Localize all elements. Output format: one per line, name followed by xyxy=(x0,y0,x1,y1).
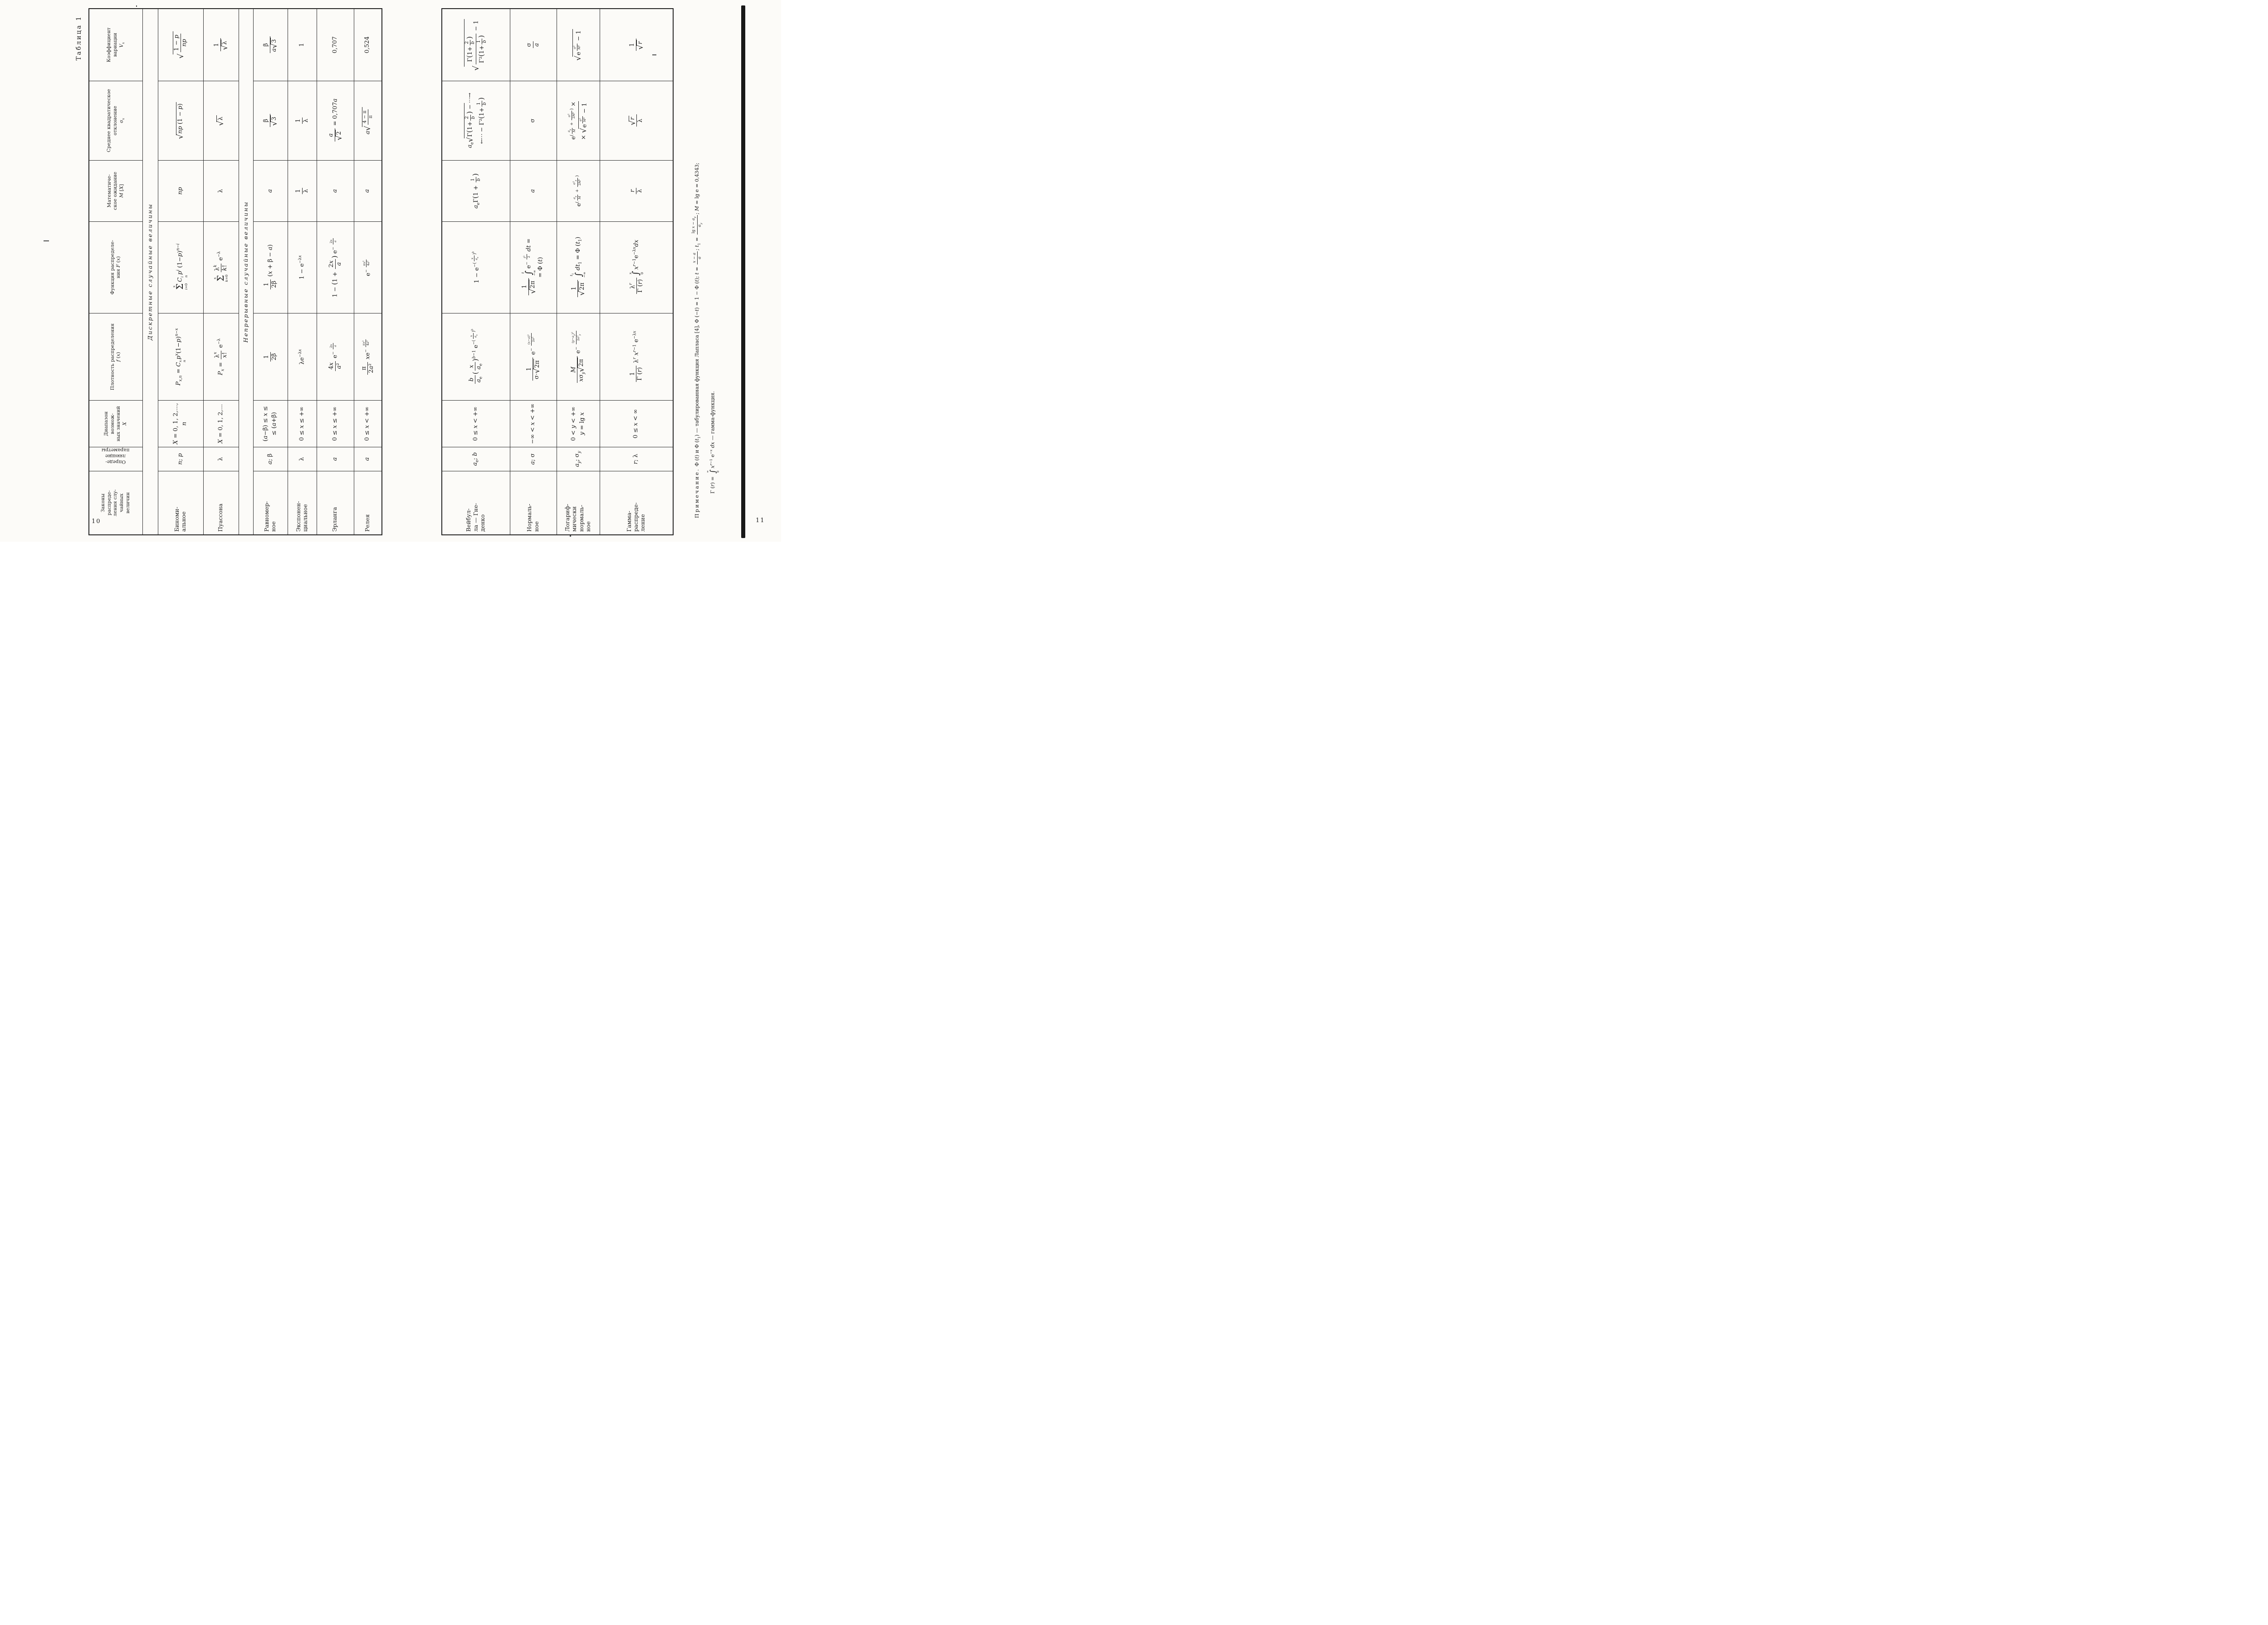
cell-name: Биноми-альное xyxy=(158,471,203,535)
cell-params: a; σ xyxy=(510,447,557,471)
cell-varcoef: √Γ(1+2b)Γ²(1+1b) − 1 xyxy=(442,9,510,81)
cell-mean: a xyxy=(354,160,382,221)
table-row: Логариф-мическинормаль-ноеay; σy0 < y < … xyxy=(557,9,600,535)
table-row: Равномер-ноеa; β(a−β) ≤ x ≤≤ (a+β)12β12β… xyxy=(253,9,288,535)
column-header-density: Плотность распределенияf (x) xyxy=(89,313,142,401)
cell-params: ay; σy xyxy=(557,447,600,471)
cell-cdf: e− πx²4a² xyxy=(354,221,382,313)
cell-params: a xyxy=(317,447,354,471)
scan-edge-shadow-bar xyxy=(741,5,745,538)
cell-params: r; λ xyxy=(600,447,673,471)
cell-varcoef: 1√r xyxy=(600,9,673,81)
table-row: Биноми-альноеn; pX = 0, 1, 2,…, nPx,n = … xyxy=(158,9,203,535)
cell-params: λ xyxy=(288,447,317,471)
table-caption: Таблица 1 xyxy=(75,15,83,60)
table-row: Экспонен-циальноеλ0 ≤ x ≤ +∞λe−λx1 − e−λ… xyxy=(288,9,317,535)
cell-name: Экспонен-циальное xyxy=(288,471,317,535)
table-row: Эрлангаa0 ≤ x ≤ +∞4xa² e− 2xa1 − (1 + 2x… xyxy=(317,9,354,535)
cell-cdf: 1 − e−(xaе)b xyxy=(442,221,510,313)
table-row: ПуассонаλX = 0, 1, 2,…Px = λxx! e−λxΣk=0… xyxy=(203,9,239,535)
section-row-discrete: Дискретные случайные величины xyxy=(142,9,158,535)
distribution-table-page-10: Законыраспреде-ления слу-чайныхвеличинОп… xyxy=(88,8,382,535)
column-header-params: Опреде-ляющиепараметры xyxy=(89,447,142,471)
cell-range: 0 < y < +∞y = lg x xyxy=(557,401,600,447)
cell-range: 0 ≤ x < +∞ xyxy=(442,401,510,447)
table-footnote: Примечание. Φ (t) и Φ (t1) — табулирован… xyxy=(691,21,719,534)
cell-std: a√2 = 0,707a xyxy=(317,81,354,160)
cell-density: Px,n = Cxnpx(1−p)n−x xyxy=(158,313,203,401)
table-header-row: Законыраспреде-ления слу-чайныхвеличинОп… xyxy=(89,9,142,535)
cell-mean: a xyxy=(510,160,557,221)
table-row: Вейбул-ла — Гне-денкоaе; b0 ≤ x < +∞baе(… xyxy=(442,9,510,535)
cell-name: Гамма-распреде-ление xyxy=(600,471,673,535)
cell-mean: e(ayM + σ²y2M²) xyxy=(557,160,600,221)
cell-mean: np xyxy=(158,160,203,221)
scan-artifact xyxy=(652,54,656,55)
cell-params: a; β xyxy=(253,447,288,471)
cell-density: λe−λx xyxy=(288,313,317,401)
cell-cdf: xΣk=0λkk! e−λ xyxy=(203,221,239,313)
cell-std: √rλ xyxy=(600,81,673,160)
cell-name: Логариф-мическинормаль-ное xyxy=(557,471,600,535)
cell-cdf: 1 − e−λx xyxy=(288,221,317,313)
column-header-varcoef: КоэффициентвариацииVx xyxy=(89,9,142,81)
cell-density: 1Γ (r) λr xr−1 e−λx xyxy=(600,313,673,401)
cell-std: e(ayM + σ²2M²) ×× √eσ²M² − 1 xyxy=(557,81,600,160)
cell-params: λ xyxy=(203,447,239,471)
cell-std: √np (1 − p) xyxy=(158,81,203,160)
distribution-table-page-11: Вейбул-ла — Гне-денкоaе; b0 ≤ x < +∞baе(… xyxy=(441,8,674,535)
cell-name: Эрланга xyxy=(317,471,354,535)
cell-cdf: 1√2πt1∫−∞dt1 = Φ (t1) xyxy=(557,221,600,313)
column-header-range: Диапазон возмож-ных значенийX xyxy=(89,401,142,447)
table-row: Релеяa0 ≤ x < +∞π2a² xe− πx²4a²e− πx²4a²… xyxy=(354,9,382,535)
cell-mean: rλ xyxy=(600,160,673,221)
cell-range: 0 ≤ x < +∞ xyxy=(354,401,382,447)
cell-std: σ xyxy=(510,81,557,160)
cell-density: 1σ·√2π e− (x−a)²2σ² xyxy=(510,313,557,401)
cell-cdf: λrΓ (r)x∫0xr−1e−λxdx xyxy=(600,221,673,313)
cell-cdf: xΣi=0Cinpi (1−p)n−i xyxy=(158,221,203,313)
scan-artifact xyxy=(570,535,571,537)
scanned-book-spread: Таблица 1 Законыраспреде-ления слу-чайны… xyxy=(0,0,781,542)
cell-params: a xyxy=(354,447,382,471)
cell-varcoef: σa xyxy=(510,9,557,81)
column-header-std: Среднее квадратическоеотклонениеσx xyxy=(89,81,142,160)
cell-cdf: 1√2πt∫−∞e− t²2 dt == Φ (t) xyxy=(510,221,557,313)
cell-varcoef: √eσ²M² − 1 xyxy=(557,9,600,81)
cell-varcoef: 0,707 xyxy=(317,9,354,81)
cell-cdf: 12β (x + β − a) xyxy=(253,221,288,313)
page-number-left: 10 xyxy=(92,518,101,525)
rotated-table-block: Таблица 1 Законыраспреде-ления слу-чайны… xyxy=(0,0,781,542)
cell-varcoef: βa√3 xyxy=(253,9,288,81)
cell-name: Релея xyxy=(354,471,382,535)
cell-std: 1λ xyxy=(288,81,317,160)
cell-name: Равномер-ное xyxy=(253,471,288,535)
cell-params: n; p xyxy=(158,447,203,471)
footnote-line-2: Γ (r) = ∞∫0xr−1 e−x dx — гамма-функция. xyxy=(706,21,719,494)
cell-params: aе; b xyxy=(442,447,510,471)
cell-density: π2a² xe− πx²4a² xyxy=(354,313,382,401)
cell-density: 4xa² e− 2xa xyxy=(317,313,354,401)
cell-mean: a xyxy=(317,160,354,221)
cell-mean: aеΓ(1 + 1b) xyxy=(442,160,510,221)
cell-range: 0 ≤ x < ∞ xyxy=(600,401,673,447)
cell-name: Пуассона xyxy=(203,471,239,535)
table-row: Нормаль-ноеa; σ−∞ < x < +∞1σ·√2π e− (x−a… xyxy=(510,9,557,535)
cell-varcoef: √1 − pnp xyxy=(158,9,203,81)
scan-artifact xyxy=(136,5,137,7)
cell-cdf: 1 − (1 + 2xa) e− 2xa xyxy=(317,221,354,313)
cell-density: 12β xyxy=(253,313,288,401)
footnote-line-1: Примечание. Φ (t) и Φ (t1) — табулирован… xyxy=(691,21,703,534)
cell-range: X = 0, 1, 2,… xyxy=(203,401,239,447)
cell-name: Вейбул-ла — Гне-денко xyxy=(442,471,510,535)
cell-range: X = 0, 1, 2,…, n xyxy=(158,401,203,447)
cell-range: −∞ < x < +∞ xyxy=(510,401,557,447)
cell-mean: λ xyxy=(203,160,239,221)
page-number-right: 11 xyxy=(756,517,765,524)
cell-std: √λ xyxy=(203,81,239,160)
column-header-cdf: Функция распределе-ния F (x) xyxy=(89,221,142,313)
cell-range: 0 ≤ x ≤ +∞ xyxy=(288,401,317,447)
scan-artifact xyxy=(44,240,49,241)
cell-varcoef: 0,524 xyxy=(354,9,382,81)
cell-mean: 1λ xyxy=(288,160,317,221)
cell-name: Нормаль-ное xyxy=(510,471,557,535)
cell-range: (a−β) ≤ x ≤≤ (a+β) xyxy=(253,401,288,447)
cell-density: Mxσy√2π e− (y−ay)²2σ²y xyxy=(557,313,600,401)
cell-mean: a xyxy=(253,160,288,221)
column-header-mean: Математиче-ское ожиданиеM [X] xyxy=(89,160,142,221)
cell-std: β√3 xyxy=(253,81,288,160)
cell-range: 0 ≤ x ≤ +∞ xyxy=(317,401,354,447)
cell-std: aе√Γ(1+2b) −⋯→←⋯ − Γ²(1+1b) xyxy=(442,81,510,160)
cell-varcoef: 1√λ xyxy=(203,9,239,81)
cell-density: Px = λxx! e−λ xyxy=(203,313,239,401)
column-header-laws: Законыраспреде-ления слу-чайныхвеличин xyxy=(89,471,142,535)
cell-varcoef: 1 xyxy=(288,9,317,81)
cell-std: a√4 − ππ xyxy=(354,81,382,160)
section-row-continuous: Непрерывные случайные величины xyxy=(239,9,253,535)
table-row: Гамма-распреде-лениеr; λ0 ≤ x < ∞1Γ (r) … xyxy=(600,9,673,535)
cell-density: baе(xaе)b−1 e−(xaе)b xyxy=(442,313,510,401)
